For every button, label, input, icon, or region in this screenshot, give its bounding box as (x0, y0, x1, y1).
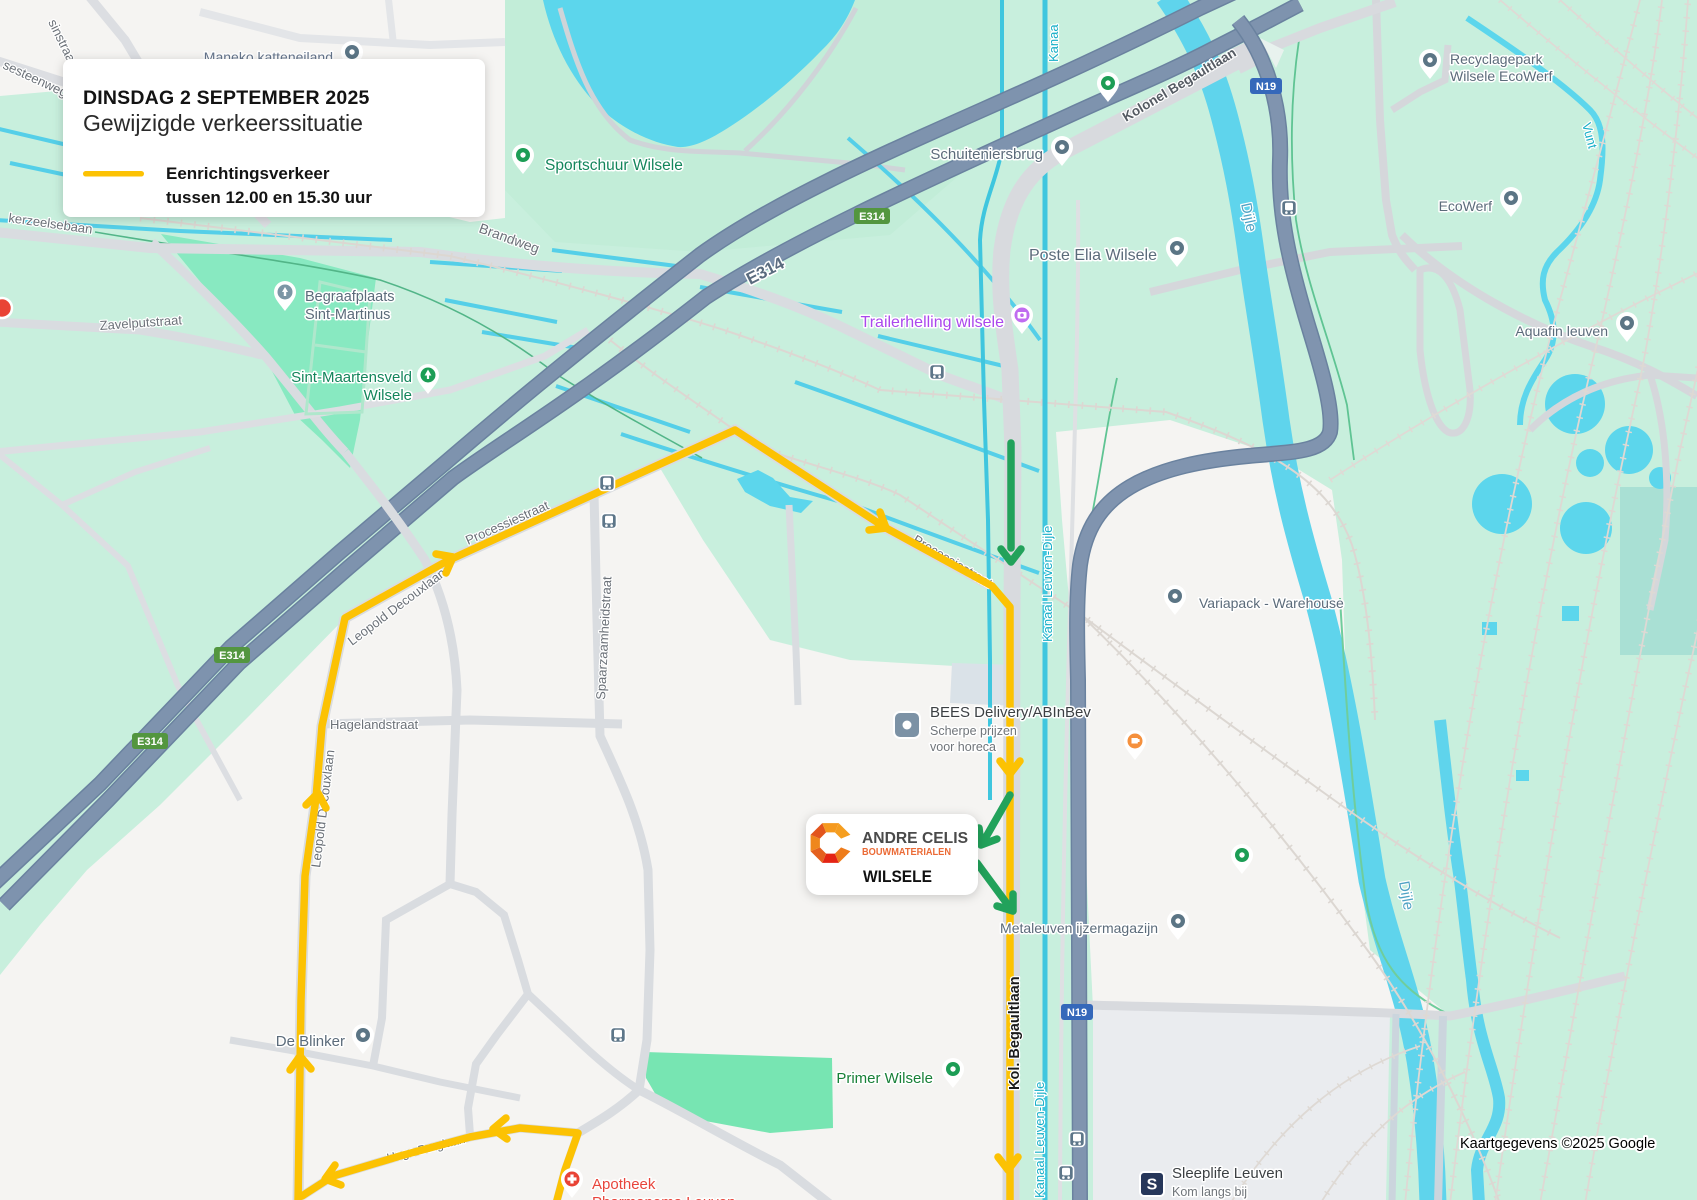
svg-text:De Blinker: De Blinker (276, 1033, 345, 1050)
svg-text:N19: N19 (1256, 81, 1276, 93)
svg-text:E314: E314 (859, 211, 886, 223)
svg-text:Kanaal Leuven-Dijle: Kanaal Leuven-Dijle (1040, 526, 1055, 642)
svg-text:WILSELE: WILSELE (863, 868, 932, 886)
svg-text:BEES Delivery/ABInBev: BEES Delivery/ABInBev (930, 704, 1091, 721)
svg-text:Poste Elia Wilsele: Poste Elia Wilsele (1029, 247, 1157, 264)
svg-text:Apotheek: Apotheek (592, 1176, 656, 1193)
svg-text:Primer Wilsele: Primer Wilsele (836, 1070, 933, 1087)
svg-text:N19: N19 (1067, 1007, 1087, 1019)
svg-text:Kaartgegevens ©2025 Google: Kaartgegevens ©2025 Google (1460, 1136, 1655, 1152)
svg-text:DINSDAG 2 SEPTEMBER 2025: DINSDAG 2 SEPTEMBER 2025 (83, 87, 370, 109)
svg-text:Eenrichtingsverkeer: Eenrichtingsverkeer (166, 164, 330, 183)
svg-text:Sint-Martinus: Sint-Martinus (305, 307, 390, 323)
svg-text:EcoWerf: EcoWerf (1439, 198, 1493, 214)
svg-text:Metaleuven ijzermagazijn: Metaleuven ijzermagazijn (1000, 920, 1158, 936)
svg-text:S: S (1147, 1177, 1158, 1194)
svg-text:Variapack - Warehouse: Variapack - Warehouse (1199, 595, 1344, 611)
svg-text:Sint-Maartensveld: Sint-Maartensveld (291, 369, 412, 386)
svg-text:Hagelandstraat: Hagelandstraat (330, 717, 419, 732)
svg-text:Gewijzigde verkeerssituatie: Gewijzigde verkeerssituatie (83, 110, 363, 136)
svg-text:Kanaa: Kanaa (1046, 24, 1061, 62)
svg-text:Pharmanema Leuven: Pharmanema Leuven (592, 1194, 735, 1200)
svg-text:Scherpe prijzen: Scherpe prijzen (930, 724, 1017, 738)
svg-text:Trailerhelling wilsele: Trailerhelling wilsele (861, 314, 1005, 331)
svg-text:Sportschuur Wilsele: Sportschuur Wilsele (545, 157, 683, 174)
svg-text:E314: E314 (219, 650, 246, 662)
svg-text:Aquafin leuven: Aquafin leuven (1515, 323, 1608, 339)
svg-text:Sleeplife Leuven: Sleeplife Leuven (1172, 1165, 1283, 1182)
svg-text:Wilsele: Wilsele (364, 387, 412, 404)
svg-text:Schuiteniersbrug: Schuiteniersbrug (930, 146, 1043, 163)
svg-text:Begraafplaats: Begraafplaats (305, 289, 394, 305)
svg-text:Kol. Begaultlaan: Kol. Begaultlaan (1007, 976, 1023, 1090)
svg-text:Kom langs bij: Kom langs bij (1172, 1185, 1247, 1199)
svg-text:E314: E314 (137, 736, 164, 748)
svg-text:ANDRE CELIS: ANDRE CELIS (862, 830, 968, 847)
svg-text:Wilsele EcoWerf: Wilsele EcoWerf (1450, 68, 1553, 84)
svg-text:tussen 12.00 en 15.30 uur: tussen 12.00 en 15.30 uur (166, 188, 372, 207)
svg-text:BOUWMATERIALEN: BOUWMATERIALEN (862, 847, 951, 858)
svg-text:Kanaal Leuven-Dijle: Kanaal Leuven-Dijle (1032, 1082, 1047, 1198)
svg-text:voor horeca: voor horeca (930, 740, 996, 754)
svg-text:Recyclagepark: Recyclagepark (1450, 51, 1544, 67)
